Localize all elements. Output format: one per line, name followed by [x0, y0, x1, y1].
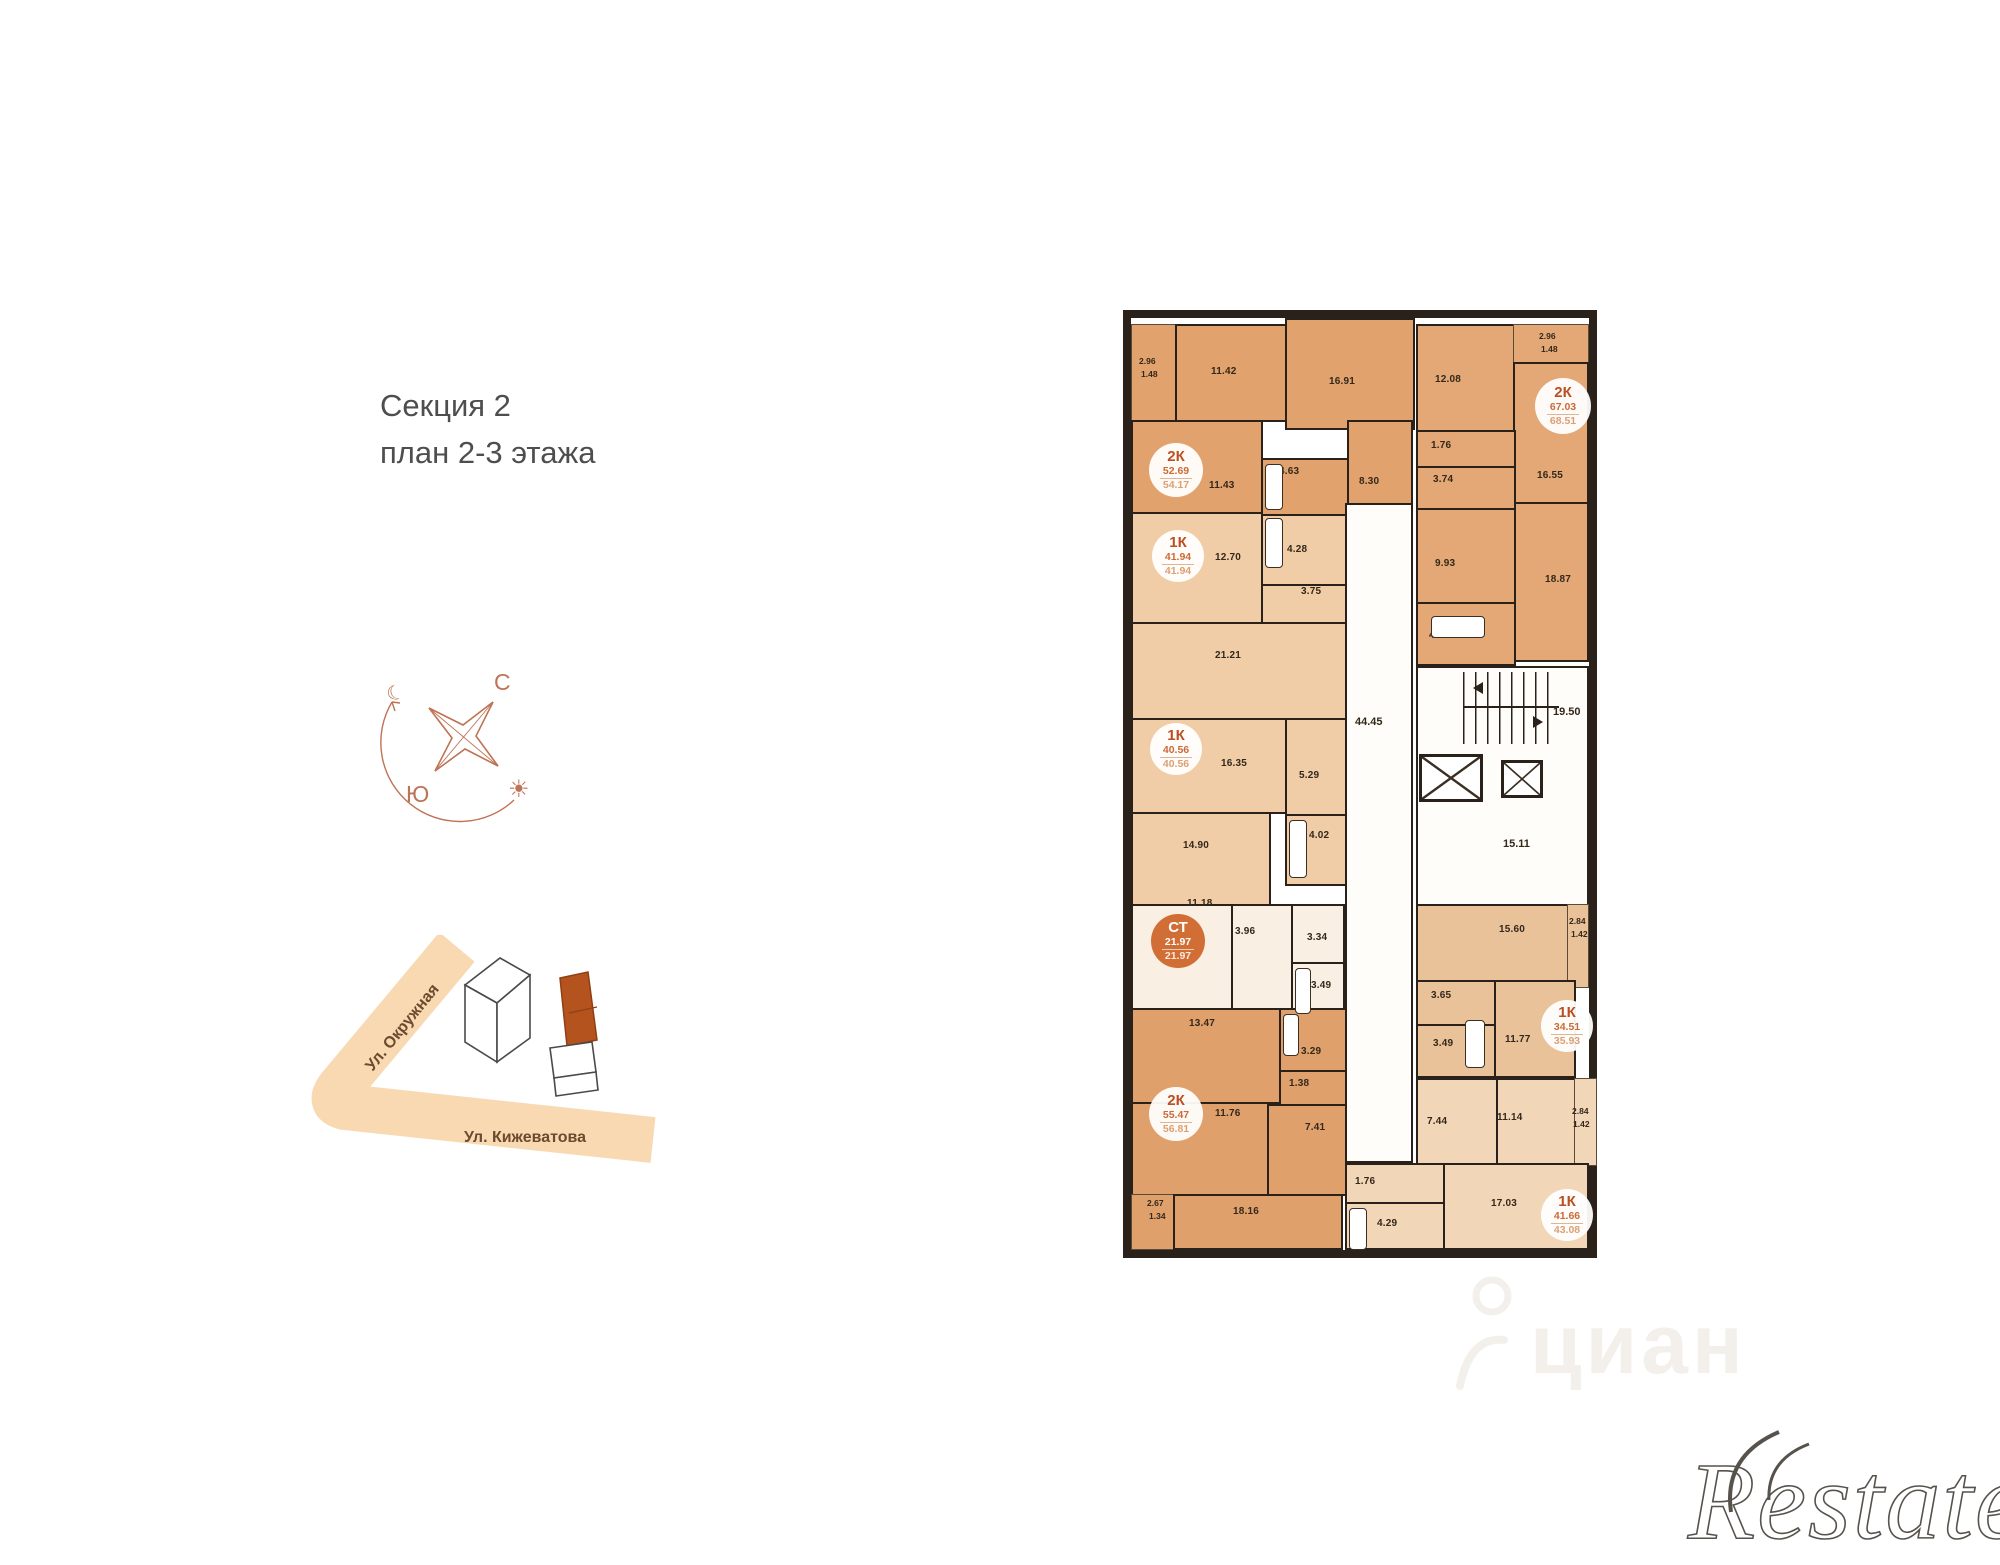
- room: [1267, 1104, 1349, 1196]
- restate-watermark-text: Restate: [1688, 1438, 2000, 1565]
- room: [1131, 622, 1349, 720]
- street-label-kizhevatova: Ул. Кижеватова: [435, 1129, 615, 1147]
- room: [1416, 466, 1516, 510]
- apartment-area-main: 34.51: [1554, 1022, 1580, 1033]
- room-area-label: 2.96: [1139, 356, 1156, 366]
- compass-north-label: С: [494, 669, 511, 695]
- apartment-type: 2К: [1167, 1093, 1185, 1109]
- apartment-badge: 2К 67.03 68.51: [1535, 378, 1591, 434]
- apartment-area-total: 43.08: [1551, 1223, 1583, 1236]
- room-area-label: 5.29: [1299, 770, 1319, 781]
- room: [1416, 904, 1576, 982]
- room-area-label: 11.42: [1211, 366, 1236, 377]
- room-area-label: 3.34: [1307, 932, 1327, 943]
- apartment-badge: 1К 41.66 43.08: [1541, 1189, 1593, 1241]
- room-area-label: 4.29: [1377, 1218, 1397, 1229]
- compass-graphic: С Ю ☾ ☀: [362, 650, 572, 840]
- apartment-type: 1К: [1169, 535, 1187, 551]
- bathtub-icon: [1265, 518, 1283, 568]
- room-area-label: 12.08: [1435, 374, 1461, 385]
- room-area-label: 4.02: [1309, 830, 1329, 841]
- apartment-badge: СТ 21.97 21.97: [1151, 914, 1205, 968]
- apartment-area-main: 21.97: [1165, 937, 1191, 948]
- stair-landing-line: [1463, 706, 1559, 708]
- elevator-shaft: [1501, 760, 1543, 798]
- room: [1173, 1194, 1343, 1250]
- page: Секция 2 план 2-3 этажа С Ю ☾ ☀: [0, 0, 2000, 1563]
- stair-arrow-down-icon: [1533, 716, 1549, 728]
- room: [1347, 420, 1413, 506]
- elevator-shaft: [1419, 754, 1483, 802]
- apartment-type: 1К: [1167, 728, 1185, 744]
- room-area-label: 3.65: [1431, 990, 1451, 1001]
- room-area-label: 1.42: [1571, 929, 1588, 939]
- apartment-area-main: 52.69: [1163, 466, 1189, 477]
- compass-south-label: Ю: [406, 781, 429, 807]
- room-area-label: 16.55: [1537, 470, 1563, 481]
- room-area-label: 1.48: [1541, 344, 1558, 354]
- room: [1231, 904, 1293, 1010]
- room: [1496, 1078, 1576, 1174]
- compass-rose: С Ю ☾ ☀: [362, 650, 572, 840]
- room: [1131, 812, 1271, 906]
- bathtub-icon: [1283, 1014, 1299, 1056]
- apartment-type: 2К: [1167, 449, 1185, 465]
- apartment-area-total: 21.97: [1162, 949, 1194, 962]
- apartment-area-total: 40.56: [1160, 757, 1192, 770]
- apartment-type: 2К: [1554, 385, 1572, 401]
- room-area-label: 11.18: [1187, 898, 1212, 909]
- page-title: Секция 2 план 2-3 этажа: [380, 382, 595, 476]
- room-area-label: 3.49: [1433, 1038, 1453, 1049]
- apartment-type: СТ: [1168, 920, 1188, 936]
- cian-person-icon: [1452, 1268, 1524, 1398]
- room-area-label: 2.96: [1539, 331, 1556, 341]
- room-area-label: 2.84: [1572, 1106, 1589, 1116]
- room: [1416, 324, 1516, 432]
- bathtub-icon: [1265, 464, 1283, 510]
- room-area-label: 8.30: [1359, 476, 1379, 487]
- bathtub-icon: [1431, 616, 1485, 638]
- room-area-label: 11.14: [1497, 1112, 1522, 1123]
- apartment-area-total: 35.93: [1551, 1034, 1583, 1047]
- apartment-badge: 2К 52.69 54.17: [1149, 443, 1203, 497]
- room-area-label: 16.35: [1221, 758, 1247, 769]
- apartment-area-main: 55.47: [1163, 1110, 1189, 1121]
- room-area-label: 1.34: [1149, 1211, 1166, 1221]
- apartment-area-main: 41.66: [1554, 1211, 1580, 1222]
- room-area-label: 14.90: [1183, 840, 1209, 851]
- room-area-label: 2.84: [1569, 916, 1586, 926]
- room-area-label: 3.75: [1301, 586, 1321, 597]
- location-map: Ул. Окружная Ул. Кижеватова: [285, 935, 665, 1175]
- room-area-label: 18.87: [1545, 574, 1571, 585]
- cian-watermark: циан: [1452, 1268, 1772, 1408]
- sun-icon: ☀: [508, 776, 530, 803]
- room-area-label: 15.60: [1499, 924, 1525, 935]
- cian-watermark-text: циан: [1530, 1296, 1747, 1393]
- stairs-area-label: 19.50: [1553, 706, 1581, 718]
- apartment-area-main: 40.56: [1163, 745, 1189, 756]
- room-area-label: 1.38: [1289, 1078, 1309, 1089]
- apartment-area-main: 67.03: [1550, 402, 1576, 413]
- room-area-label: 11.77: [1505, 1034, 1530, 1045]
- room-area-label: 1.42: [1573, 1119, 1590, 1129]
- room-area-label: 13.47: [1189, 1018, 1215, 1029]
- room-area-label: 1.76: [1431, 440, 1451, 451]
- hall-area-label: 15.11: [1503, 838, 1530, 850]
- bathtub-icon: [1295, 968, 1311, 1014]
- annex-building-icon: [550, 1042, 598, 1096]
- room-area-label: 4.28: [1287, 544, 1307, 555]
- apartment-area-main: 41.94: [1165, 552, 1191, 563]
- room-area-label: 21.21: [1215, 650, 1241, 661]
- apartment-badge: 1К 34.51 35.93: [1541, 1000, 1593, 1052]
- bathtub-icon: [1465, 1020, 1485, 1068]
- apartment-area-total: 68.51: [1547, 414, 1579, 427]
- room-area-label: 12.70: [1215, 552, 1241, 563]
- room: [1416, 980, 1496, 1026]
- room-area-label: 2.67: [1147, 1198, 1164, 1208]
- room-area-label: 7.41: [1305, 1122, 1325, 1133]
- apartment-type: 1К: [1558, 1005, 1576, 1021]
- apartment-badge: 1К 41.94 41.94: [1152, 530, 1204, 582]
- apartment-area-total: 56.81: [1160, 1122, 1192, 1135]
- corridor: [1345, 503, 1413, 1163]
- highlighted-building-icon: [560, 972, 597, 1046]
- room: [1416, 508, 1516, 604]
- apartment-type: 1К: [1558, 1194, 1576, 1210]
- bathtub-icon: [1289, 820, 1307, 878]
- room-area-label: 17.03: [1491, 1198, 1517, 1209]
- apartment-area-total: 41.94: [1162, 564, 1194, 577]
- room-area-label: 1.48: [1141, 369, 1158, 379]
- room-area-label: 3.49: [1311, 980, 1331, 991]
- room: [1285, 718, 1349, 816]
- bathtub-icon: [1349, 1208, 1367, 1250]
- room-area-label: 7.44: [1427, 1116, 1447, 1127]
- room-area-label: 18.16: [1233, 1206, 1259, 1217]
- room-area-label: 3.96: [1235, 926, 1255, 937]
- stair-arrow-up-icon: [1467, 682, 1483, 694]
- room-area-label: 11.76: [1215, 1108, 1240, 1119]
- apartment-badge: 2К 55.47 56.81: [1149, 1087, 1203, 1141]
- apartment-area-total: 54.17: [1160, 478, 1192, 491]
- room: [1285, 318, 1415, 430]
- apartment-badge: 1К 40.56 40.56: [1150, 723, 1202, 775]
- room-area-label: 16.91: [1329, 376, 1355, 387]
- section-title: Секция 2: [380, 382, 595, 429]
- moon-icon: ☾: [383, 680, 407, 707]
- room-area-label: 11.43: [1209, 480, 1234, 491]
- room-area-label: 3.29: [1301, 1046, 1321, 1057]
- room-area-label: 3.74: [1433, 474, 1453, 485]
- room-area-label: 9.93: [1435, 558, 1455, 569]
- floor-plan: 2.96 1.48 11.42 16.91 11.43 4.63 8.30 12…: [1123, 310, 1597, 1258]
- floor-subtitle: план 2-3 этажа: [380, 429, 595, 476]
- corridor-area-label: 44.45: [1355, 716, 1383, 728]
- room-area-label: 1.76: [1355, 1176, 1375, 1187]
